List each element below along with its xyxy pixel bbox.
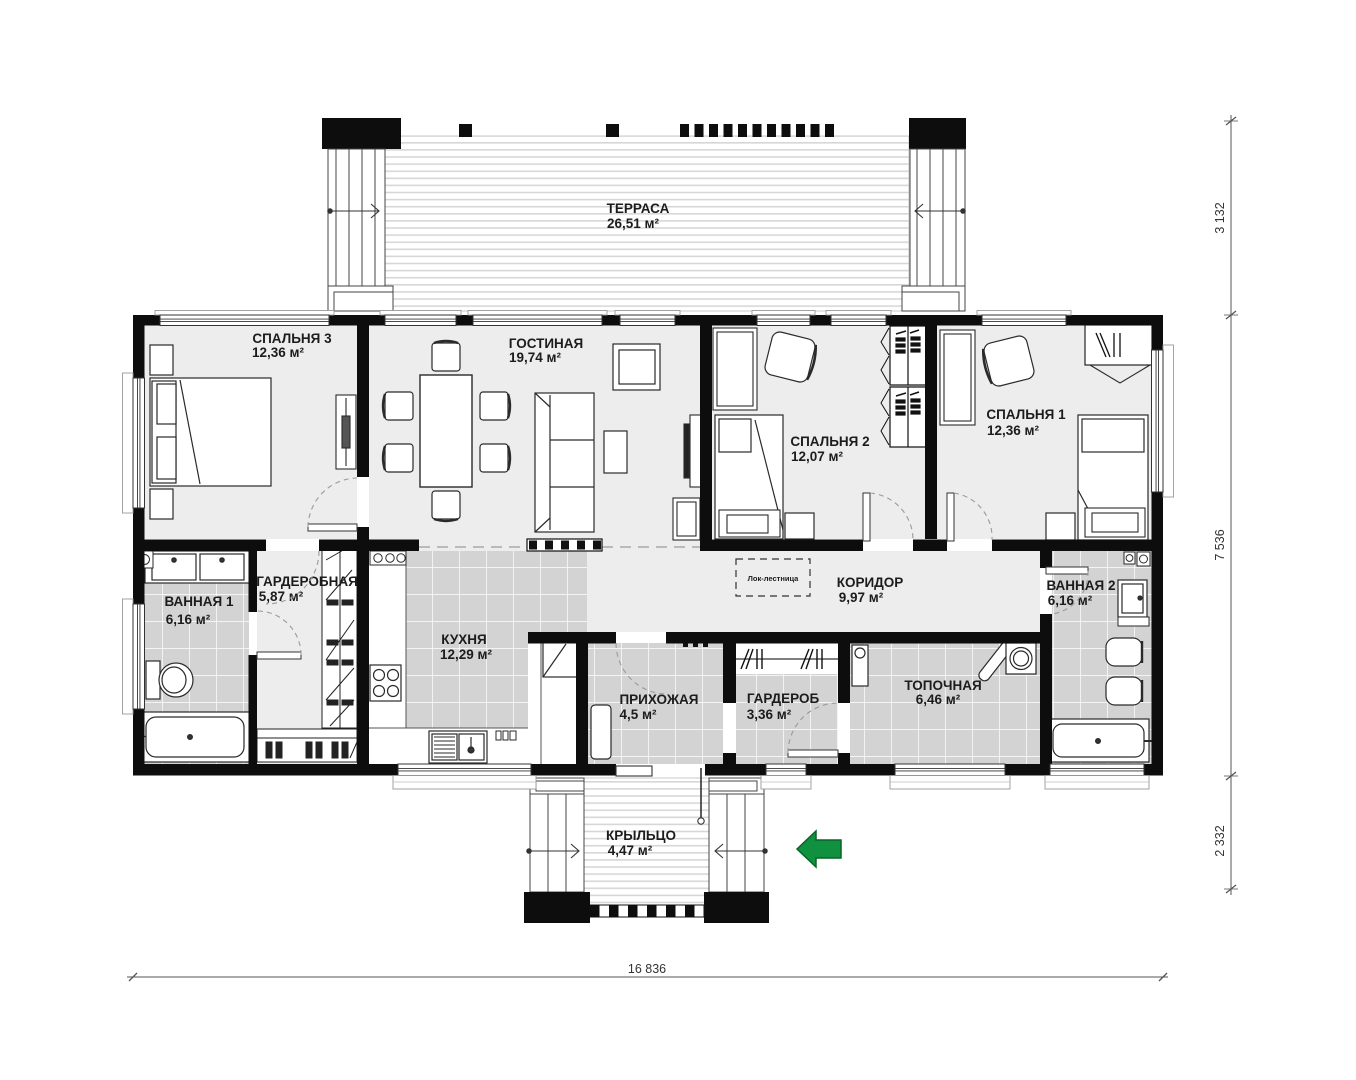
- svg-text:4,47 м²: 4,47 м²: [608, 843, 653, 858]
- svg-text:КОРИДОР: КОРИДОР: [837, 575, 904, 590]
- svg-text:СПАЛЬНЯ 1: СПАЛЬНЯ 1: [986, 407, 1066, 422]
- svg-text:ВАННАЯ 2: ВАННАЯ 2: [1046, 578, 1115, 593]
- svg-text:6,16 м²: 6,16 м²: [166, 612, 211, 627]
- svg-text:ВАННАЯ 1: ВАННАЯ 1: [164, 594, 234, 609]
- svg-text:2 332: 2 332: [1213, 825, 1227, 856]
- svg-text:7 536: 7 536: [1213, 529, 1227, 560]
- svg-text:3 132: 3 132: [1213, 202, 1227, 233]
- svg-text:ГОСТИНАЯ: ГОСТИНАЯ: [509, 336, 584, 351]
- svg-text:ТОПОЧНАЯ: ТОПОЧНАЯ: [904, 678, 981, 693]
- svg-text:6,46 м²: 6,46 м²: [916, 692, 961, 707]
- svg-text:СПАЛЬНЯ 2: СПАЛЬНЯ 2: [790, 434, 869, 449]
- svg-text:КУХНЯ: КУХНЯ: [441, 632, 486, 647]
- svg-text:Лок-лестница: Лок-лестница: [748, 574, 800, 583]
- svg-text:ТЕРРАСА: ТЕРРАСА: [607, 201, 670, 216]
- svg-text:12,36 м²: 12,36 м²: [252, 345, 305, 360]
- svg-text:26,51 м²: 26,51 м²: [607, 216, 660, 231]
- svg-text:12,07 м²: 12,07 м²: [791, 449, 844, 464]
- svg-text:ГАРДЕРОБ: ГАРДЕРОБ: [747, 691, 820, 706]
- svg-text:КРЫЛЬЦО: КРЫЛЬЦО: [606, 828, 676, 843]
- svg-text:ПРИХОЖАЯ: ПРИХОЖАЯ: [619, 692, 698, 707]
- svg-text:4,5 м²: 4,5 м²: [620, 707, 658, 722]
- svg-text:9,97 м²: 9,97 м²: [839, 590, 884, 605]
- svg-text:12,36 м²: 12,36 м²: [987, 423, 1040, 438]
- svg-text:16 836: 16 836: [628, 962, 666, 976]
- svg-text:СПАЛЬНЯ 3: СПАЛЬНЯ 3: [252, 331, 332, 346]
- svg-text:ГАРДЕРОБНАЯ: ГАРДЕРОБНАЯ: [256, 574, 358, 589]
- svg-text:19,74 м²: 19,74 м²: [509, 350, 562, 365]
- svg-text:3,36 м²: 3,36 м²: [747, 707, 792, 722]
- svg-text:12,29 м²: 12,29 м²: [440, 647, 493, 662]
- svg-text:6,16 м²: 6,16 м²: [1048, 593, 1093, 608]
